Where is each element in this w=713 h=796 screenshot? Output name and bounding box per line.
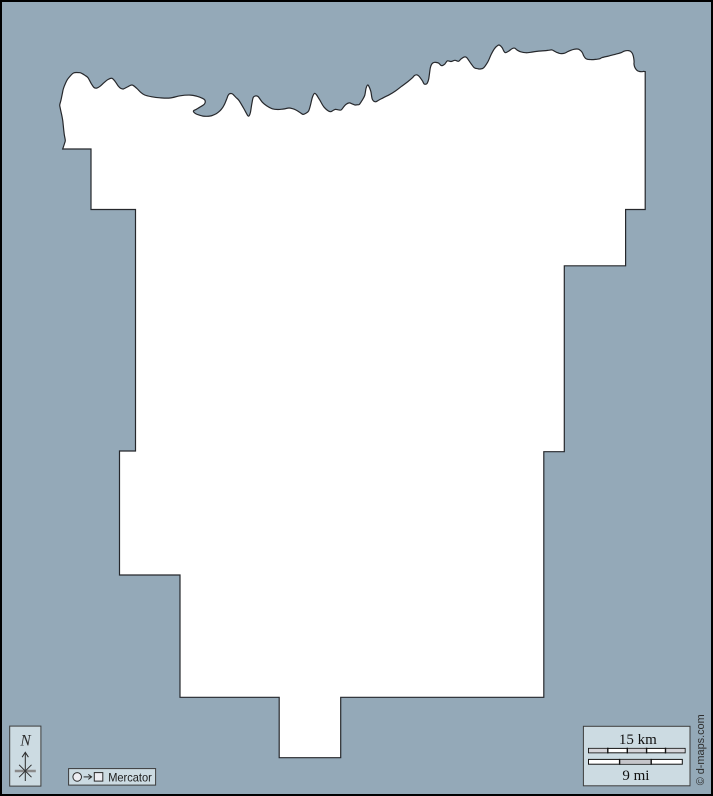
svg-text:15 km: 15 km xyxy=(619,732,657,748)
svg-text:9 mi: 9 mi xyxy=(622,768,649,784)
svg-text:Mercator: Mercator xyxy=(108,771,152,785)
svg-text:N: N xyxy=(19,733,32,750)
svg-text:© d-maps.com: © d-maps.com xyxy=(695,714,707,785)
